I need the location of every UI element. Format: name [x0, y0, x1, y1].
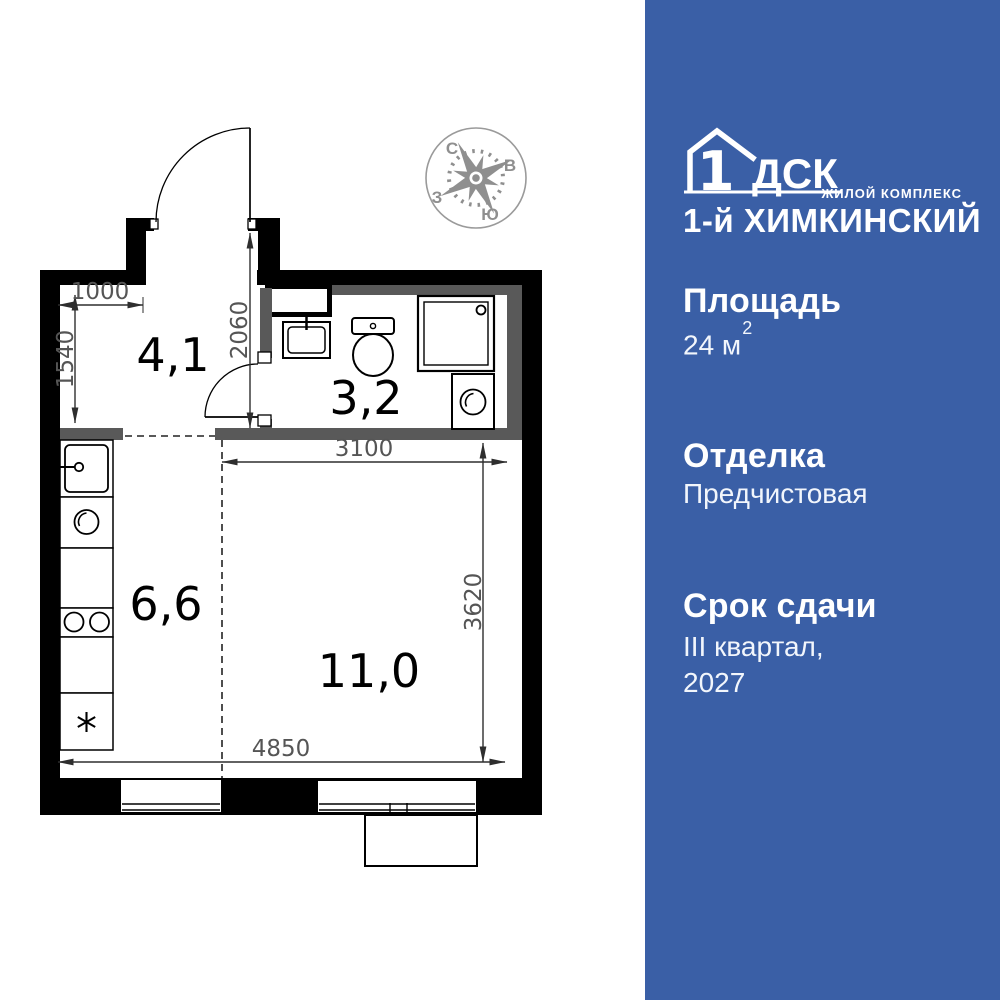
hob-burner [65, 613, 84, 632]
compass-rose [422, 124, 530, 232]
kitchen-faucet-head [75, 463, 83, 471]
handover-label: Срок сдачи [683, 588, 877, 624]
entry-nook-wall-right [258, 218, 280, 285]
toilet-bowl [353, 334, 393, 376]
compass-label-east: В [504, 156, 516, 175]
entrance-door-swing-arc [156, 128, 250, 222]
dim-label-3620: 3620 [461, 573, 487, 632]
dim-label-2060: 2060 [227, 301, 253, 360]
room-label-bathroom: 3,2 [329, 371, 402, 425]
floor-plan: 1000 1540 2060 3100 3620 4850 4,1 3,2 6,… [0, 0, 645, 1000]
partition-bathroom-top [332, 285, 507, 295]
complex-name: 1-й ХИМКИНСКИЙ [683, 201, 981, 239]
kitchen-sink [65, 445, 108, 492]
compass: С В З Ю [422, 124, 530, 232]
bathroom-jamb-bottom [258, 415, 271, 426]
partition-hall-kitchen-stub [60, 428, 123, 440]
compass-label-north: С [446, 139, 458, 158]
finishing-label: Отделка [683, 438, 825, 474]
bathroom-jamb-top [258, 352, 271, 363]
bathroom-sink-basin [288, 327, 325, 353]
wall-right [522, 270, 542, 815]
info-panel: 1 ДСК ЖИЛОЙ КОМПЛЕКС 1-й ХИМКИНСКИЙ Площ… [645, 0, 1000, 1000]
logo-number: 1 [697, 140, 735, 203]
handover-year: 2027 [683, 666, 745, 700]
hob-burner [90, 613, 109, 632]
area-value-text: 24 м [683, 329, 741, 360]
balcony-basket [365, 815, 477, 866]
ventilation-shaft-inset [270, 289, 327, 312]
partition-bathroom-left [260, 288, 272, 358]
window-left [120, 779, 222, 813]
room-label-hallway: 4,1 [136, 328, 209, 382]
dim-label-3100: 3100 [335, 436, 394, 462]
dim-label-1000: 1000 [71, 279, 130, 305]
compass-label-west: З [432, 188, 443, 207]
wall-top-right [257, 270, 542, 285]
compass-label-south: Ю [481, 205, 499, 224]
room-label-living-room: 11,0 [318, 644, 420, 698]
entrance-jamb-left [150, 219, 158, 229]
brand-logo: 1 ДСК ЖИЛОЙ КОМПЛЕКС 1-й ХИМКИНСКИЙ [681, 124, 981, 239]
window-right [317, 780, 477, 813]
area-value-sup: 2 [742, 318, 752, 338]
screenshot-canvas: 1000 1540 2060 3100 3620 4850 4,1 3,2 6,… [0, 0, 1000, 1000]
room-label-kitchen: 6,6 [129, 577, 202, 631]
handover-quarter: III квартал, [683, 630, 824, 664]
toilet-flush-button [370, 323, 375, 328]
brand-tagline: ЖИЛОЙ КОМПЛЕКС [821, 186, 962, 201]
dim-label-1540: 1540 [53, 330, 79, 389]
area-value: 24 м2 [683, 321, 751, 362]
partition-bathroom-right [507, 285, 522, 435]
kitchen-cabinet [60, 548, 113, 608]
finishing-value: Предчистовая [683, 477, 868, 511]
shower-drain [477, 306, 486, 315]
area-label: Площадь [683, 283, 841, 319]
dim-label-4850: 4850 [252, 736, 311, 762]
kitchen-cabinet [60, 637, 113, 693]
room-labels: 4,1 3,2 6,6 11,0 [129, 328, 420, 698]
